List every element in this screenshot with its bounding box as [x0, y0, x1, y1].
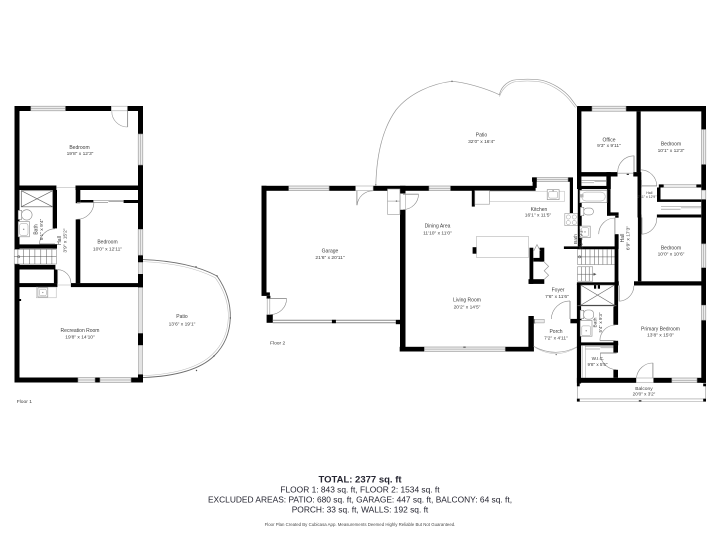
- svg-text:3'9" x 15'2": 3'9" x 15'2": [63, 228, 69, 252]
- svg-text:7'2" x 4'11": 7'2" x 4'11": [544, 335, 568, 341]
- svg-text:Hall: Hall: [57, 236, 63, 245]
- svg-text:Floor Plan Created By Cubicasa: Floor Plan Created By Cubicasa App. Meas…: [265, 522, 456, 527]
- svg-text:Office: Office: [603, 137, 616, 143]
- svg-text:Recreation Room: Recreation Room: [61, 328, 100, 334]
- svg-text:7'6" x 11'6": 7'6" x 11'6": [545, 294, 569, 300]
- svg-text:Foyer: Foyer: [552, 287, 565, 293]
- svg-text:9'8" x 5'5": 9'8" x 5'5": [587, 362, 607, 367]
- svg-text:32'0" x 16'4": 32'0" x 16'4": [468, 139, 495, 145]
- svg-text:Hall: Hall: [620, 234, 626, 243]
- svg-text:Porch: Porch: [549, 329, 562, 335]
- svg-text:Floor 1: Floor 1: [17, 399, 33, 405]
- svg-text:5'0" x 9'1": 5'0" x 9'1": [579, 229, 584, 249]
- svg-text:20'0" x 3'2": 20'0" x 3'2": [633, 392, 656, 397]
- svg-text:Dining Area: Dining Area: [425, 224, 451, 230]
- svg-text:19'8" x 12'3": 19'8" x 12'3": [67, 151, 94, 157]
- svg-text:16'1" x 11'5": 16'1" x 11'5": [525, 213, 552, 219]
- svg-text:10'1" x 12'3": 10'1" x 12'3": [658, 148, 685, 154]
- svg-text:2'11" x 12'9": 2'11" x 12'9": [638, 195, 658, 199]
- svg-text:19'8" x 14'10": 19'8" x 14'10": [65, 335, 95, 341]
- svg-text:PORCH: 33 sq. ft, WALLS: 192 s: PORCH: 33 sq. ft, WALLS: 192 sq. ft: [292, 505, 429, 515]
- svg-text:9'3" x 9'11": 9'3" x 9'11": [597, 143, 621, 149]
- svg-text:Bedroom: Bedroom: [69, 145, 89, 151]
- svg-text:W.I.C.: W.I.C.: [592, 356, 605, 361]
- svg-text:20'2" x 14'5": 20'2" x 14'5": [454, 304, 481, 310]
- svg-text:21'6" x 20'11": 21'6" x 20'11": [315, 255, 344, 261]
- svg-text:EXCLUDED AREAS: PATIO: 680 sq.: EXCLUDED AREAS: PATIO: 680 sq. ft, GARAG…: [208, 495, 512, 505]
- svg-text:5'4" x 9'3": 5'4" x 9'3": [598, 312, 603, 332]
- svg-text:10'0" x 10'6": 10'0" x 10'6": [658, 251, 685, 257]
- svg-text:Bedroom: Bedroom: [97, 240, 117, 246]
- svg-text:Patio: Patio: [176, 314, 188, 320]
- svg-text:Garage: Garage: [322, 248, 339, 254]
- svg-text:10'0" x 12'11": 10'0" x 12'11": [93, 246, 122, 252]
- svg-text:Bath: Bath: [34, 224, 40, 235]
- svg-text:5'1" x 9'4": 5'1" x 9'4": [39, 219, 45, 241]
- svg-text:Bedroom: Bedroom: [661, 245, 681, 251]
- svg-text:FLOOR 1: 843 sq. ft, FLOOR 2:: FLOOR 1: 843 sq. ft, FLOOR 2: 1534 sq. f…: [280, 485, 440, 495]
- svg-text:11'10" x 11'0": 11'10" x 11'0": [423, 230, 452, 236]
- svg-text:6'9" x 17'3": 6'9" x 17'3": [626, 226, 632, 250]
- svg-text:Primary Bedroom: Primary Bedroom: [641, 326, 680, 332]
- svg-text:13'6" x 19'1": 13'6" x 19'1": [169, 322, 196, 328]
- svg-text:13'8" x 15'0": 13'8" x 15'0": [647, 333, 674, 339]
- svg-text:Kitchen: Kitchen: [531, 207, 548, 213]
- svg-text:Living Room: Living Room: [453, 298, 481, 304]
- svg-text:Patio: Patio: [476, 132, 488, 138]
- svg-text:Bedroom: Bedroom: [661, 142, 681, 148]
- svg-text:Floor 2: Floor 2: [270, 340, 286, 346]
